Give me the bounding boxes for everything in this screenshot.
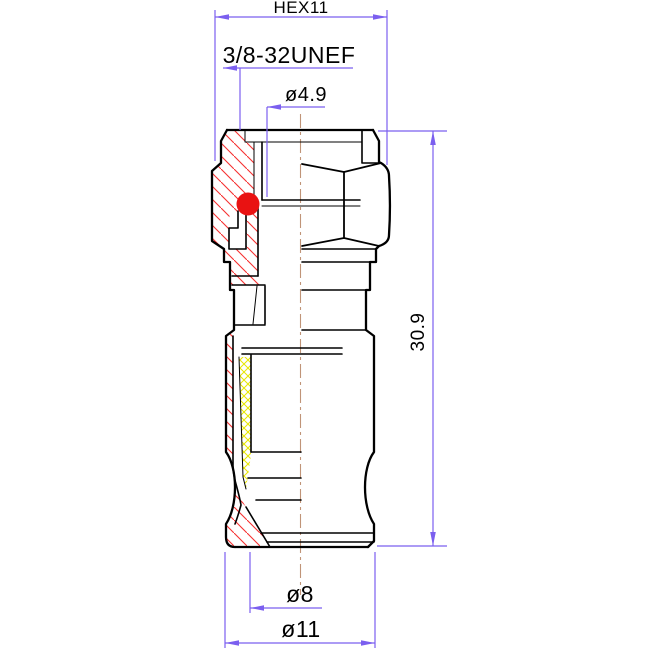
body-dia-label: ø11 [281, 616, 320, 642]
oring-marker-dot [237, 193, 260, 216]
insert-hatch-yellow [239, 357, 251, 489]
bore-dim-label: ø4.9 [285, 84, 327, 106]
height-dim-label: 30.9 [408, 313, 429, 352]
hex-nut-facets [302, 131, 381, 330]
hex-dim-label: HEX11 [273, 0, 328, 17]
dimension-inner-diameter: ø8 [250, 552, 322, 613]
dimension-overall-height: 30.9 [377, 131, 447, 546]
connector-section-drawing: HEX11 3/8-32UNEF ø4.9 30.9 ø8 ø11 [0, 0, 650, 650]
arrow-up-icon [430, 131, 436, 145]
arrow-right-icon [373, 14, 387, 20]
arrow-left-icon [225, 640, 239, 646]
arrow-left-icon [215, 14, 229, 20]
cad-drawing-canvas: HEX11 3/8-32UNEF ø4.9 30.9 ø8 ø11 [0, 0, 650, 650]
arrow-right-icon [361, 640, 375, 646]
arrow-down-icon [430, 532, 436, 546]
arrow-left-icon [267, 104, 281, 110]
inner-dia-label: ø8 [286, 581, 314, 607]
dimension-bore-diameter: ø4.9 [267, 84, 327, 197]
arrow-left-icon [250, 605, 264, 611]
thread-dim-label: 3/8-32UNEF [223, 42, 356, 68]
